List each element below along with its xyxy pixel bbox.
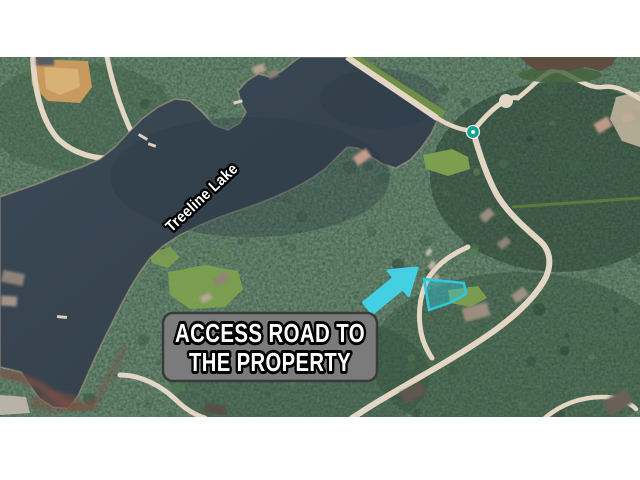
annotated-map-image: Treeline Lake ACCESS ROAD TO THE PROPERT… bbox=[0, 0, 640, 480]
caption-box: ACCESS ROAD TO THE PROPERTY bbox=[163, 313, 377, 381]
satellite-map: Treeline Lake ACCESS ROAD TO THE PROPERT… bbox=[0, 57, 640, 417]
cul-de-sac bbox=[499, 94, 513, 108]
caption-line-2: THE PROPERTY bbox=[189, 349, 351, 377]
poi-marker bbox=[467, 126, 480, 139]
caption-line-1: ACCESS ROAD TO bbox=[175, 320, 365, 348]
building bbox=[1, 295, 18, 306]
letterbox-top bbox=[0, 0, 640, 57]
map-band: Treeline Lake ACCESS ROAD TO THE PROPERT… bbox=[0, 57, 640, 417]
letterbox-bottom bbox=[0, 417, 640, 480]
building bbox=[36, 57, 54, 66]
